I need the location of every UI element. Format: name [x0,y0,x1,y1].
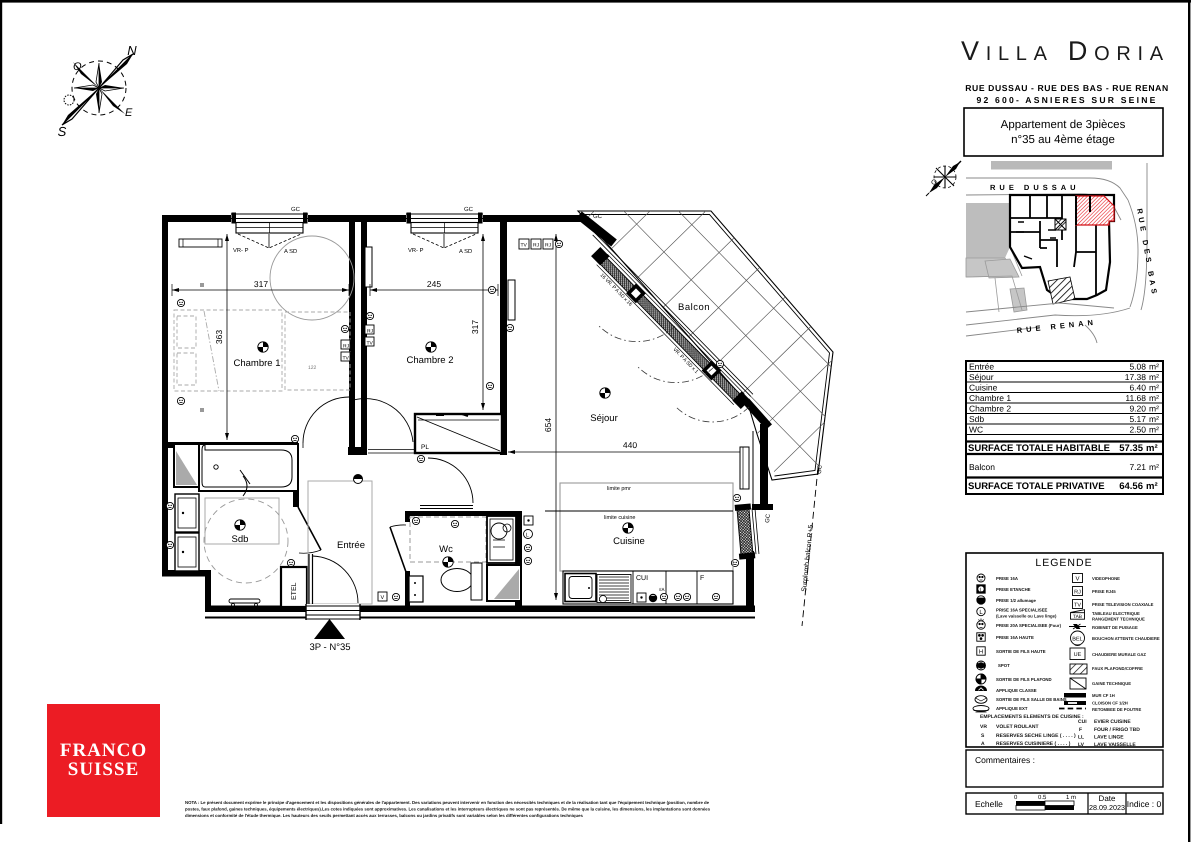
svg-text:VR- P: VR- P [408,248,424,254]
svg-text:RJ: RJ [545,243,552,249]
svg-text:RJ: RJ [343,344,350,350]
svg-text:122: 122 [308,365,317,371]
svg-text:64.56: 64.56 [1119,481,1143,492]
svg-text:RJ: RJ [367,329,374,335]
svg-text:PRISE 16A HAUTE: PRISE 16A HAUTE [996,635,1034,640]
svg-text:5.17: 5.17 [1129,414,1146,424]
svg-text:RJ: RJ [1074,590,1081,596]
svg-text:APPLIQUE CLASSE: APPLIQUE CLASSE [996,688,1037,693]
svg-text:PRISE 16A SPECIALISEE: PRISE 16A SPECIALISEE [996,608,1048,613]
svg-text:#A: #A [659,587,665,592]
svg-text:SURFACE TOTALE HABITABLE: SURFACE TOTALE HABITABLE [968,443,1110,454]
svg-text:TV: TV [521,243,528,249]
svg-text:Appartement de 3pièces: Appartement de 3pièces [1001,119,1126,131]
svg-text:GAINE TECHNIQUE: GAINE TECHNIQUE [1092,681,1131,686]
svg-text:m²: m² [1146,481,1158,492]
svg-text:PRISE 20A SPECIALISEE (Four): PRISE 20A SPECIALISEE (Four) [996,623,1062,628]
svg-text:92 600- ASNIERES SUR SEINE: 92 600- ASNIERES SUR SEINE [976,95,1157,105]
svg-text:CUI: CUI [636,575,648,582]
svg-text:PRISE TELEVISION COAXIALE: PRISE TELEVISION COAXIALE [1092,602,1154,607]
svg-text:SPOT: SPOT [998,663,1010,668]
svg-text:CHAUDIERE MURALE GAZ: CHAUDIERE MURALE GAZ [1092,652,1146,657]
svg-text:1 m: 1 m [1066,794,1076,801]
svg-text:TABLEAU ELECTRIQUE: TABLEAU ELECTRIQUE [1092,611,1140,616]
svg-text:WC: WC [969,425,983,435]
svg-text:O: O [73,61,82,73]
svg-text:m²: m² [1149,414,1159,424]
svg-text:EVIER CUISINE: EVIER CUISINE [1094,719,1131,725]
svg-text:m²: m² [1149,393,1159,403]
svg-text:TV: TV [367,341,374,347]
svg-text:Chambre 2: Chambre 2 [969,404,1011,414]
svg-text:L: L [979,587,982,593]
svg-text:CUI: CUI [1078,719,1087,725]
svg-text:PRISE 1/2 allumage: PRISE 1/2 allumage [996,598,1036,603]
svg-text:TAB: TAB [1073,614,1082,620]
svg-text:RJ: RJ [533,243,540,249]
svg-text:0.5: 0.5 [1038,794,1047,801]
svg-text:Cuisine: Cuisine [613,536,645,547]
svg-text:Entrée: Entrée [337,540,365,551]
svg-text:Date: Date [1099,794,1116,803]
svg-text:F: F [1079,727,1082,733]
svg-text:dimensions et conformité de l': dimensions et conformité de l'étude ther… [185,813,583,818]
svg-text:L: L [526,533,529,539]
svg-text:RETOMBEE DE POUTRE: RETOMBEE DE POUTRE [1092,707,1141,712]
svg-text:RANGEMENT TECHNIQUE: RANGEMENT TECHNIQUE [1092,617,1145,622]
svg-text:VR: VR [980,724,987,730]
svg-text:GC: GC [291,206,301,213]
svg-text:9.20: 9.20 [1129,404,1146,414]
svg-text:Sdb: Sdb [969,414,984,424]
svg-text:Sdb: Sdb [232,534,249,545]
svg-text:7.21: 7.21 [1129,462,1146,472]
svg-text:6.40: 6.40 [1129,383,1146,393]
svg-text:RESERVES SECHE LINGE ( . . .: RESERVES SECHE LINGE ( . . . . ) [996,733,1076,739]
svg-text:LV: LV [1078,742,1085,748]
svg-text:A SD: A SD [459,248,472,255]
svg-text:17.38: 17.38 [1125,372,1147,382]
svg-text:ETEL: ETEL [291,582,298,600]
svg-text:RUE DUSSAU - RUE DES BAS - RUE: RUE DUSSAU - RUE DES BAS - RUE RENAN [965,83,1169,93]
svg-text:m²: m² [1149,404,1159,414]
svg-text:Wc: Wc [439,544,453,555]
svg-text:VOLET ROULANT: VOLET ROULANT [996,724,1039,730]
svg-text:2.50: 2.50 [1129,425,1146,435]
svg-text:RESERVES CUISINIERE ( . . . .: RESERVES CUISINIERE ( . . . . ) [996,741,1071,747]
svg-text:m²: m² [1149,383,1159,393]
svg-text:m²: m² [1149,425,1159,435]
svg-text:A: A [981,741,985,747]
svg-text:245: 245 [427,279,441,289]
svg-text:PRISE 16A: PRISE 16A [996,576,1018,581]
svg-text:Balcon: Balcon [678,302,710,313]
svg-text:E: E [125,107,133,119]
svg-text:m²: m² [1146,443,1158,454]
svg-text:LAVE LINGE: LAVE LINGE [1094,735,1124,741]
svg-text:VIDEOPHONE: VIDEOPHONE [1092,576,1120,581]
svg-text:28.09.2023: 28.09.2023 [1089,803,1125,812]
svg-text:m²: m² [1149,372,1159,382]
svg-text:limite pmr: limite pmr [607,486,631,492]
svg-text:Commentaires :: Commentaires : [975,755,1035,765]
svg-text:Séjour: Séjour [590,413,617,424]
svg-text:PRISE ETANCHE: PRISE ETANCHE [996,587,1031,592]
svg-text:57.35: 57.35 [1119,443,1143,454]
svg-text:PRISE RJ45: PRISE RJ45 [1092,589,1116,594]
svg-text:FOUR / FRIGO TBD: FOUR / FRIGO TBD [1094,727,1140,733]
svg-text:Chambre 2: Chambre 2 [407,355,454,366]
svg-text:MUR CF 1H: MUR CF 1H [1092,693,1115,698]
svg-text:SURFACE TOTALE PRIVATIVE: SURFACE TOTALE PRIVATIVE [968,481,1105,492]
svg-text:BEL: BEL [1072,636,1082,642]
svg-text:Chambre 1: Chambre 1 [234,358,281,369]
svg-text:UE: UE [1074,652,1082,658]
svg-text:654: 654 [543,418,553,432]
svg-text:317: 317 [470,320,480,334]
svg-text:CLOISON CF 1/2H: CLOISON CF 1/2H [1092,701,1128,706]
svg-text:Echelle: Echelle [975,799,1003,809]
svg-text:LAVE VAISSELLE: LAVE VAISSELLE [1094,742,1136,748]
svg-text:440: 440 [623,440,637,450]
svg-text:TV: TV [1074,603,1081,609]
svg-text:GC: GC [593,213,603,220]
svg-text:SUISSE: SUISSE [68,759,140,780]
svg-text:n°35 au 4ème étage: n°35 au 4ème étage [1011,134,1115,146]
svg-text:Entrée: Entrée [969,362,994,372]
svg-text:SORTIE DE FILS HAUTE: SORTIE DE FILS HAUTE [996,649,1046,654]
svg-text:Chambre 1: Chambre 1 [969,393,1011,403]
svg-text:BOUCHON ATTENTE CHAUDIERE: BOUCHON ATTENTE CHAUDIERE [1092,636,1160,641]
svg-text:(Lave vaisselle ou Lave linge): (Lave vaisselle ou Lave linge) [996,614,1057,619]
svg-text:TV: TV [343,356,350,362]
svg-text:3P - N°35: 3P - N°35 [309,642,350,653]
svg-text:PL: PL [421,444,429,451]
svg-text:postes, faux plafond, gaines t: postes, faux plafond, gaines techniques,… [185,807,711,812]
svg-text:H: H [979,648,983,655]
svg-text:LL: LL [1078,735,1084,741]
svg-text:Balcon: Balcon [969,462,995,472]
svg-text:FRANCO: FRANCO [60,740,147,761]
svg-text:ROBINET DE PUISAGE: ROBINET DE PUISAGE [1092,625,1138,630]
svg-text:S: S [58,124,67,139]
svg-text:SORTIE DE FILS SALLE DE BAINS: SORTIE DE FILS SALLE DE BAINS [996,697,1067,702]
svg-text:LEGENDE: LEGENDE [1035,557,1092,569]
svg-text:FAUX PLAFOND/COFFRE: FAUX PLAFOND/COFFRE [1092,666,1143,671]
svg-text:V: V [1075,576,1079,583]
svg-text:VR- P: VR- P [233,248,249,254]
svg-text:Indice : 0: Indice : 0 [1127,799,1162,809]
svg-text:363: 363 [214,330,224,344]
svg-text:Cuisine: Cuisine [969,383,998,393]
svg-text:SORTIE DE FILS PLAFOND: SORTIE DE FILS PLAFOND [996,677,1052,682]
svg-text:GC: GC [764,513,772,523]
svg-text:317: 317 [254,279,268,289]
svg-text:5.08: 5.08 [1129,362,1146,372]
svg-text:m²: m² [1149,362,1159,372]
svg-text:limite cuisine: limite cuisine [604,515,635,521]
svg-text:APPLIQUE EXT: APPLIQUE EXT [996,706,1028,711]
svg-text:F: F [700,575,704,582]
svg-text:EMPLACEMENTS ELEMENTS DE CUISI: EMPLACEMENTS ELEMENTS DE CUISINE : [980,714,1084,720]
svg-text:N: N [127,43,137,58]
svg-text:m²: m² [1149,462,1159,472]
svg-text:11.68: 11.68 [1125,393,1146,403]
svg-text:GC: GC [464,206,474,213]
svg-text:A SD: A SD [284,248,297,255]
svg-text:NOTA : Le présent document exp: NOTA : Le présent document exprime le pr… [185,800,710,805]
svg-text:Séjour: Séjour [969,372,994,382]
svg-text:V: V [381,595,385,601]
svg-text:RUE DUSSAU: RUE DUSSAU [990,183,1080,192]
